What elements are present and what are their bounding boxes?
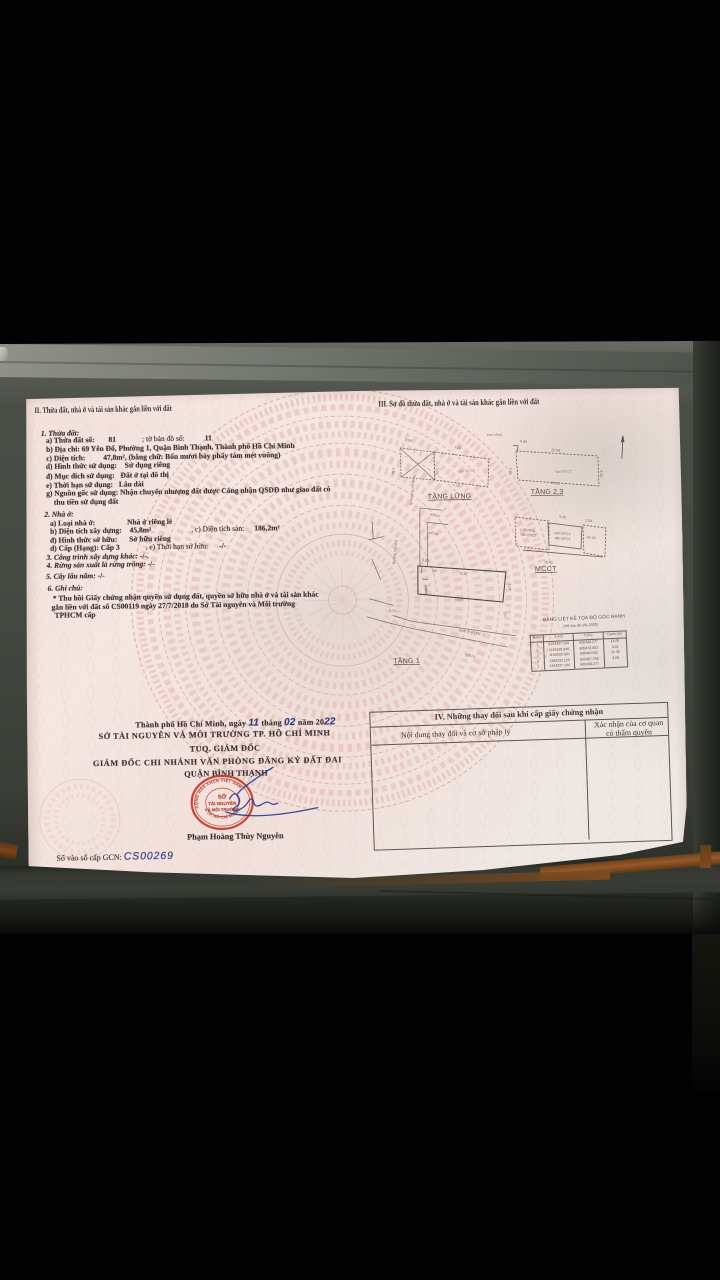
svg-text:SỞ: SỞ — [218, 794, 227, 801]
